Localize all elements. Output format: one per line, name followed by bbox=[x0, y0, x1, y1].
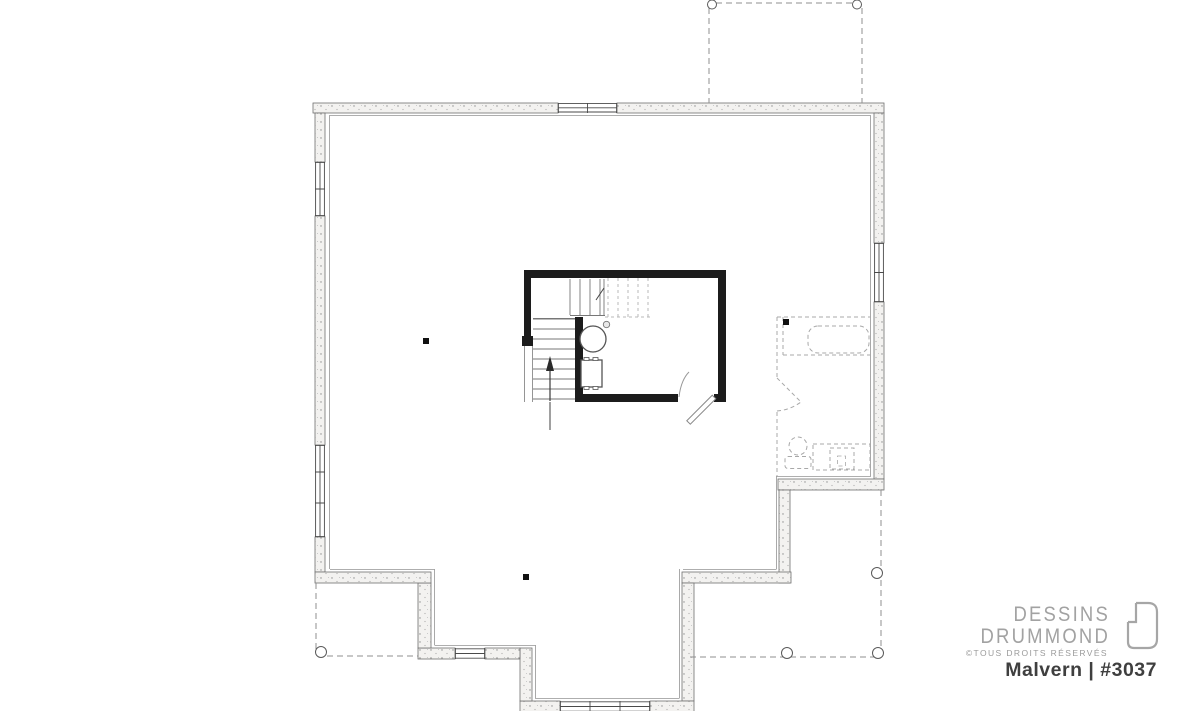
porch-post-footing bbox=[316, 647, 327, 658]
bathtub bbox=[808, 326, 869, 353]
drummond-door-logo-icon bbox=[1119, 601, 1161, 651]
wall-step-mid-a bbox=[418, 648, 455, 659]
wall-bay-right bbox=[682, 583, 694, 701]
wall-bay-left bbox=[520, 648, 532, 701]
wall-left-c bbox=[315, 537, 325, 572]
future-bathroom bbox=[777, 317, 871, 477]
future-wall-dashed bbox=[777, 317, 871, 477]
floor-drain bbox=[603, 321, 609, 327]
mechanical-room-door bbox=[679, 372, 716, 424]
floor-plan-page: DESSINS DRUMMOND ©TOUS DROITS RÉSERVÉS M… bbox=[0, 0, 1200, 711]
deck-outline-top bbox=[708, 0, 863, 103]
stair-treads-left bbox=[533, 319, 575, 399]
support-post bbox=[423, 338, 429, 344]
wall-right-a bbox=[874, 113, 884, 243]
deck-post-footing bbox=[873, 648, 884, 659]
interior-wall-lines bbox=[330, 115, 872, 699]
brand-name-line1: DESSINS bbox=[960, 604, 1110, 625]
toilet-bowl bbox=[789, 437, 807, 455]
window-left-lower bbox=[315, 445, 325, 537]
foundation-windows bbox=[315, 103, 884, 711]
window-top bbox=[558, 103, 617, 113]
water-heater bbox=[580, 326, 606, 352]
sink-faucet bbox=[838, 456, 846, 466]
wall-bay-bottom-a bbox=[520, 701, 560, 711]
wall-right-b bbox=[874, 302, 884, 479]
wall-left-b bbox=[315, 216, 325, 445]
door-swing-arc bbox=[679, 372, 689, 397]
bathroom-door-swing bbox=[777, 378, 801, 411]
wall-right-lower bbox=[779, 490, 790, 583]
up-arrow bbox=[546, 356, 554, 430]
furnace bbox=[581, 358, 602, 390]
wall-end-post bbox=[522, 336, 533, 346]
brand-name-line2: DRUMMOND bbox=[960, 626, 1110, 647]
wall-top-right bbox=[617, 103, 884, 113]
wall-step-mid-vert bbox=[418, 583, 431, 648]
deck-post-footing bbox=[853, 0, 862, 9]
mechanical-room-walls bbox=[522, 270, 726, 402]
stairs-above-dashed bbox=[605, 278, 650, 317]
support-post bbox=[783, 319, 789, 325]
deck-post-footing bbox=[782, 648, 793, 659]
wall-bay-bottom-b bbox=[650, 701, 694, 711]
window-left-upper bbox=[315, 162, 325, 216]
plan-title: Malvern | #3037 bbox=[940, 659, 1157, 682]
staircase bbox=[525, 278, 651, 430]
exterior-foundation-walls bbox=[313, 103, 884, 711]
wall-bath-bottom bbox=[778, 479, 884, 490]
wall-step-left bbox=[315, 572, 431, 583]
porch-outline-bottom-left bbox=[316, 583, 419, 658]
wall-top-left bbox=[313, 103, 558, 113]
window-right bbox=[874, 243, 884, 302]
wall-left-a bbox=[315, 113, 325, 162]
wall-step-right bbox=[682, 572, 791, 583]
support-posts bbox=[423, 319, 789, 580]
window-bottom-large bbox=[560, 701, 650, 711]
wall-step-mid-b bbox=[485, 648, 520, 659]
support-post bbox=[523, 574, 529, 580]
window-bottom-small bbox=[455, 648, 485, 659]
copyright-text: ©TOUS DROITS RÉSERVÉS bbox=[940, 648, 1108, 658]
toilet-tank bbox=[785, 457, 811, 469]
tub-platform bbox=[783, 317, 871, 355]
deck-post-footing bbox=[708, 0, 717, 9]
deck-post-footing bbox=[872, 568, 883, 579]
door-leaf bbox=[687, 395, 716, 424]
